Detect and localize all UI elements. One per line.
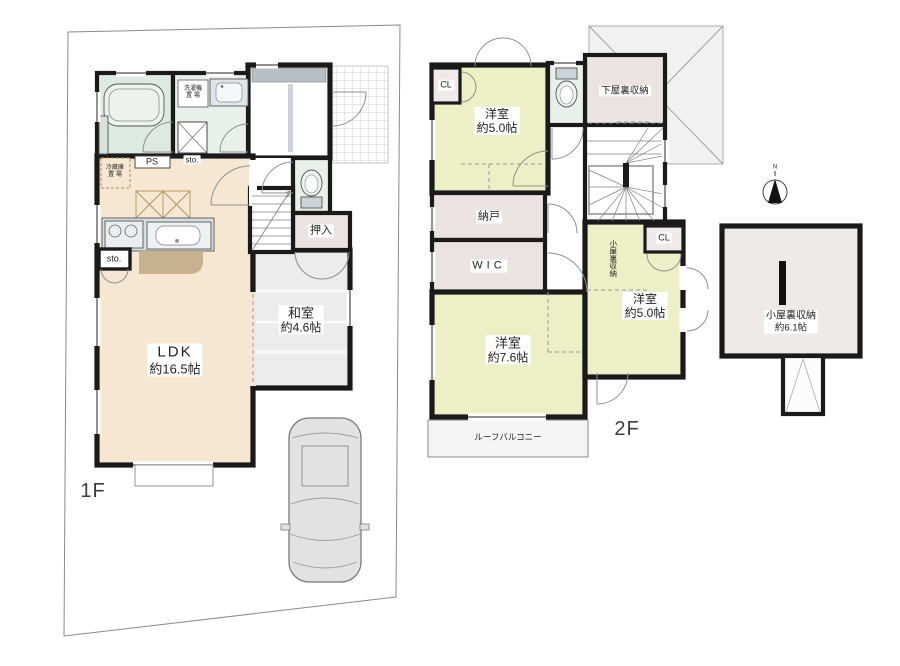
- label-floor1: 1F: [78, 480, 107, 504]
- entrance-porch: [332, 66, 388, 163]
- label-ps: PS: [144, 157, 160, 168]
- label-bedroom-sw: 洋室 約7.6帖: [486, 335, 531, 364]
- attic-ladder-icon: [783, 356, 823, 414]
- label-washer-area: 洗濯機 置 場: [182, 86, 204, 100]
- ldk-opening: [249, 160, 257, 206]
- car-icon: [281, 418, 369, 582]
- attic-hatch-mark: [779, 261, 786, 305]
- entrance-partition: [288, 84, 293, 152]
- label-floor2: 2F: [612, 418, 641, 442]
- entrance-step: [252, 68, 326, 82]
- label-fridge-area: 冷蔵庫 置 場: [104, 165, 126, 179]
- compass-north-icon: [763, 171, 787, 204]
- toilet-icon-1f: [301, 170, 322, 208]
- stove-icon: [105, 221, 143, 248]
- label-wic: WIC: [470, 260, 507, 273]
- washbasin-icon: [210, 79, 248, 106]
- label-roof-balcony: ルーフバルコニー: [472, 432, 543, 442]
- storage-x-box: [178, 122, 207, 153]
- label-washitsu: 和室 約4.6帖: [279, 305, 324, 334]
- bay-window-arcs: [475, 38, 531, 66]
- label-bedroom-nw: 洋室 約5.0帖: [475, 107, 520, 135]
- toilet-icon-2f: [556, 68, 577, 107]
- label-sto-lower: sto.: [105, 254, 124, 265]
- sink-icon: [147, 222, 211, 249]
- terrace-step: [135, 465, 213, 486]
- label-koyaura-2f: 小屋裏収納: [609, 238, 617, 278]
- label-sto-upper: sto.: [184, 155, 201, 164]
- label-bedroom-east: 洋室 約5.0帖: [623, 292, 668, 320]
- floor1-plan: [94, 62, 389, 583]
- attic-plan: [722, 171, 860, 414]
- label-oshiire: 押入: [308, 225, 334, 238]
- floor-plan-figure: LDK 約16.5帖 和室 約4.6帖 押入 PS sto. sto. 洗濯機 …: [0, 0, 900, 666]
- ldk-room: [97, 156, 253, 465]
- label-compass-n: N: [771, 164, 779, 171]
- label-geyaura-storage: 下屋裏収納: [599, 85, 651, 96]
- attic-storage-room: [722, 226, 860, 356]
- label-closet-west: CL: [438, 80, 454, 91]
- counter-return: [139, 251, 203, 274]
- label-closet-east: CL: [656, 233, 672, 244]
- label-attic-storage: 小屋裏収納 約6.1帖: [764, 311, 818, 334]
- label-ldk: LDK 約16.5帖: [147, 343, 202, 376]
- floor2-plan: [428, 26, 723, 457]
- casement-window-arcs: [687, 268, 708, 331]
- label-nando: 納戸: [476, 211, 502, 224]
